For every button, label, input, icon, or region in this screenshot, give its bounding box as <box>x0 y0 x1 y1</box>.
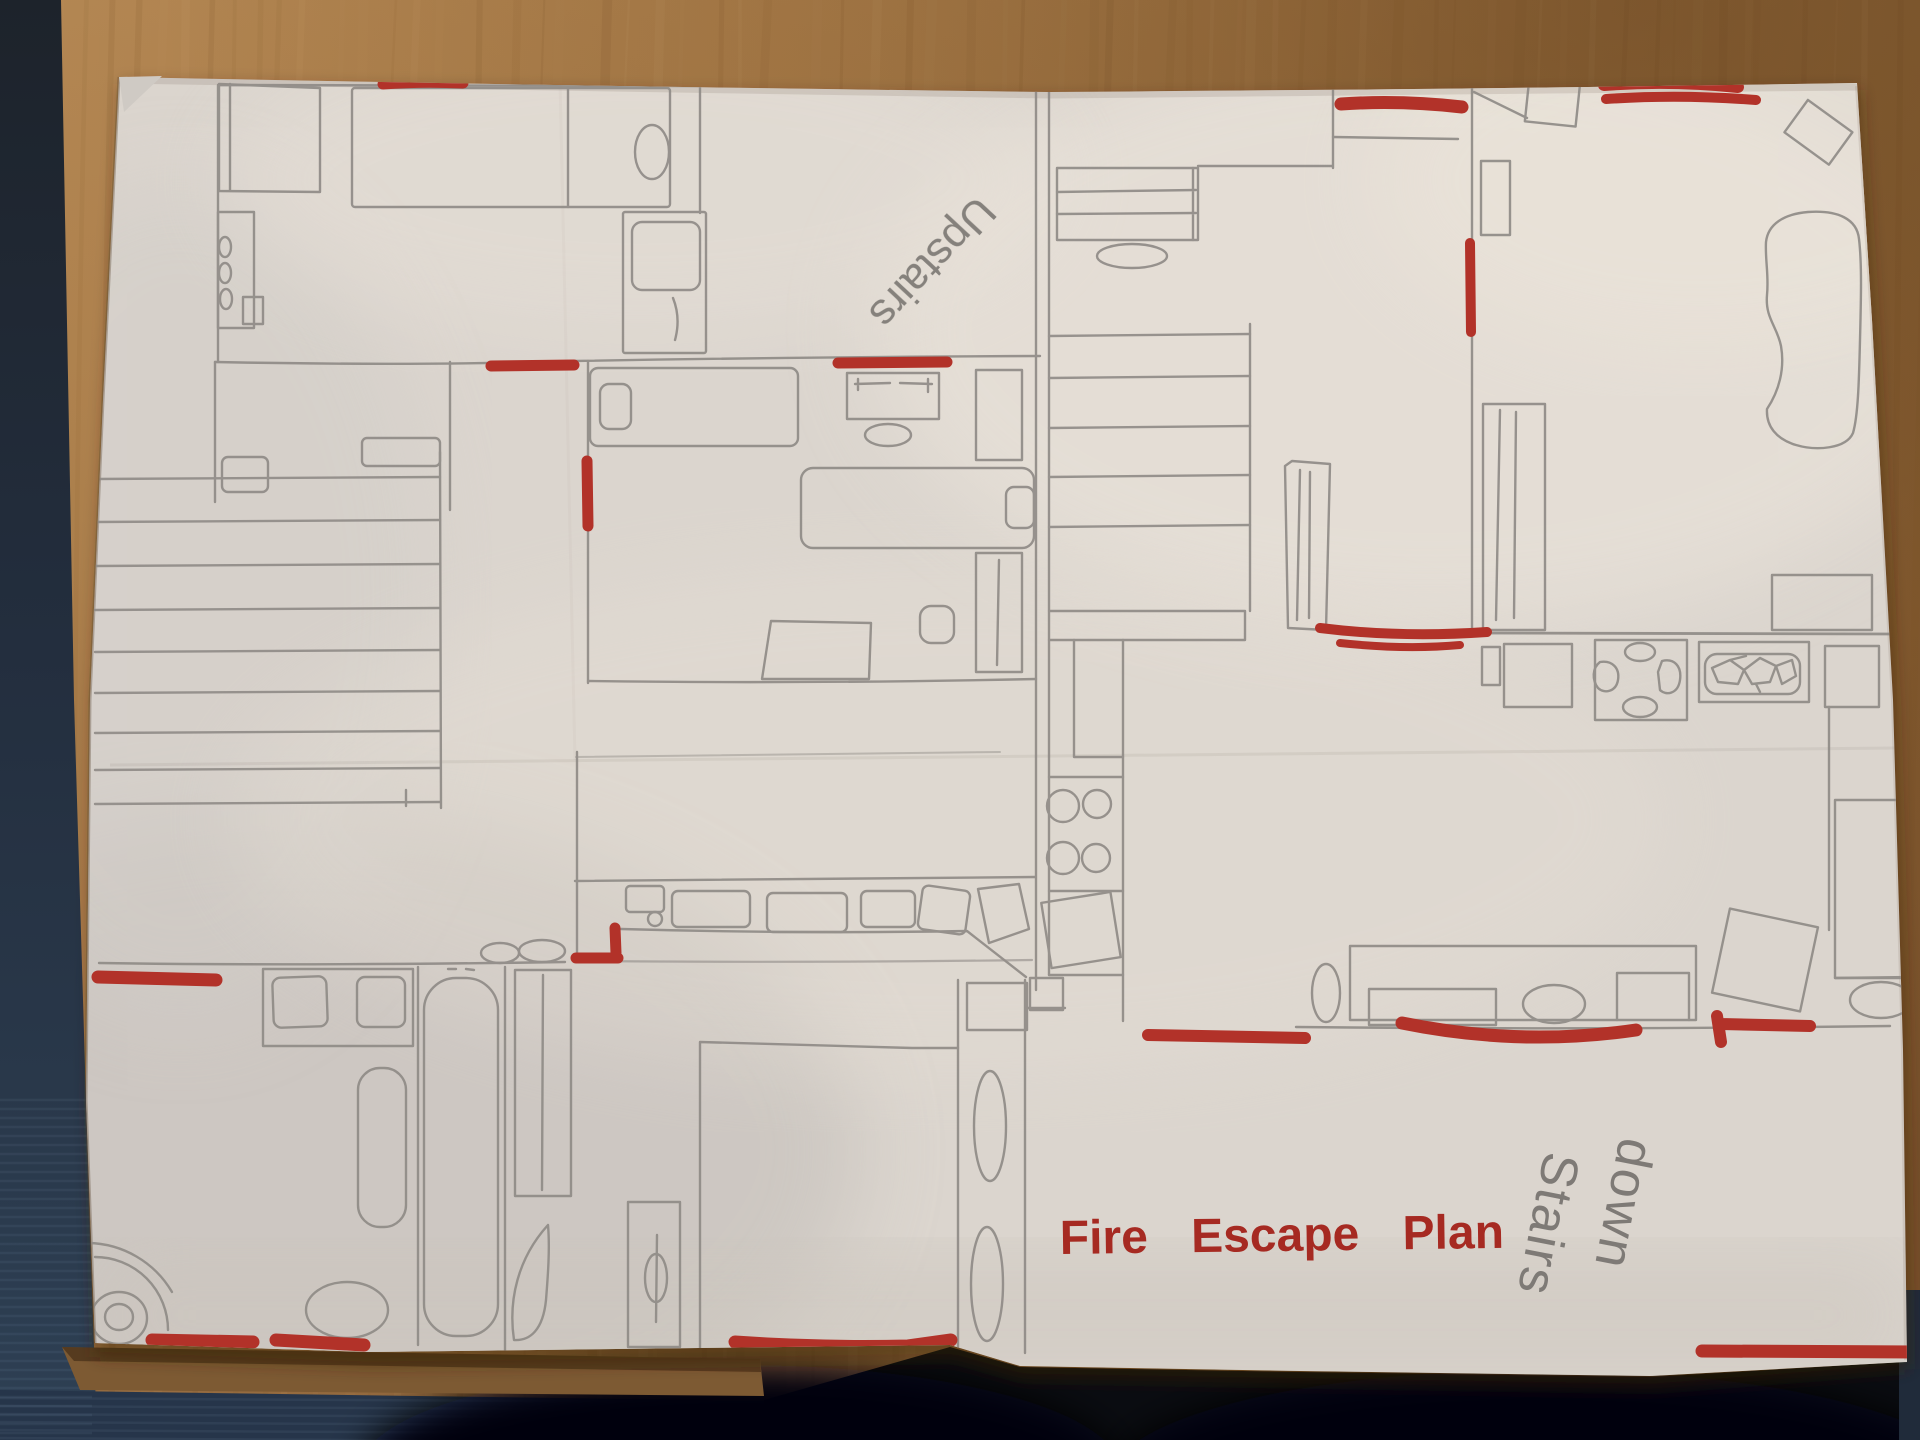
svg-text:Fire Escape Plan: Fire Escape Plan <box>1059 1206 1504 1265</box>
